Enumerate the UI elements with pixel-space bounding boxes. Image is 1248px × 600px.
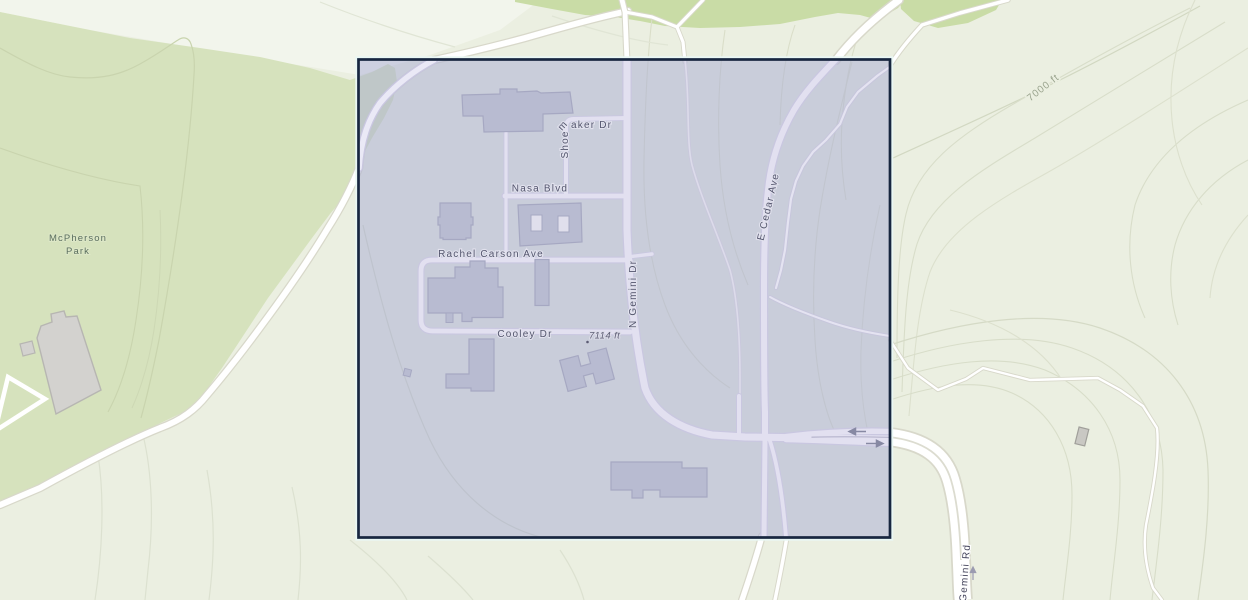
svg-text:Nasa Blvd: Nasa Blvd	[512, 184, 568, 195]
svg-text:Shoe: Shoe	[560, 130, 571, 158]
svg-text:McPherson: McPherson	[49, 233, 107, 244]
svg-text:Cooley Dr: Cooley Dr	[497, 329, 552, 340]
svg-text:Park: Park	[66, 246, 90, 257]
svg-text:N Gemini Dr: N Gemini Dr	[628, 260, 639, 328]
svg-text:aker Dr: aker Dr	[571, 120, 612, 131]
svg-text:Rachel Carson Ave: Rachel Carson Ave	[438, 249, 544, 260]
svg-text:7114 ft: 7114 ft	[589, 331, 620, 342]
